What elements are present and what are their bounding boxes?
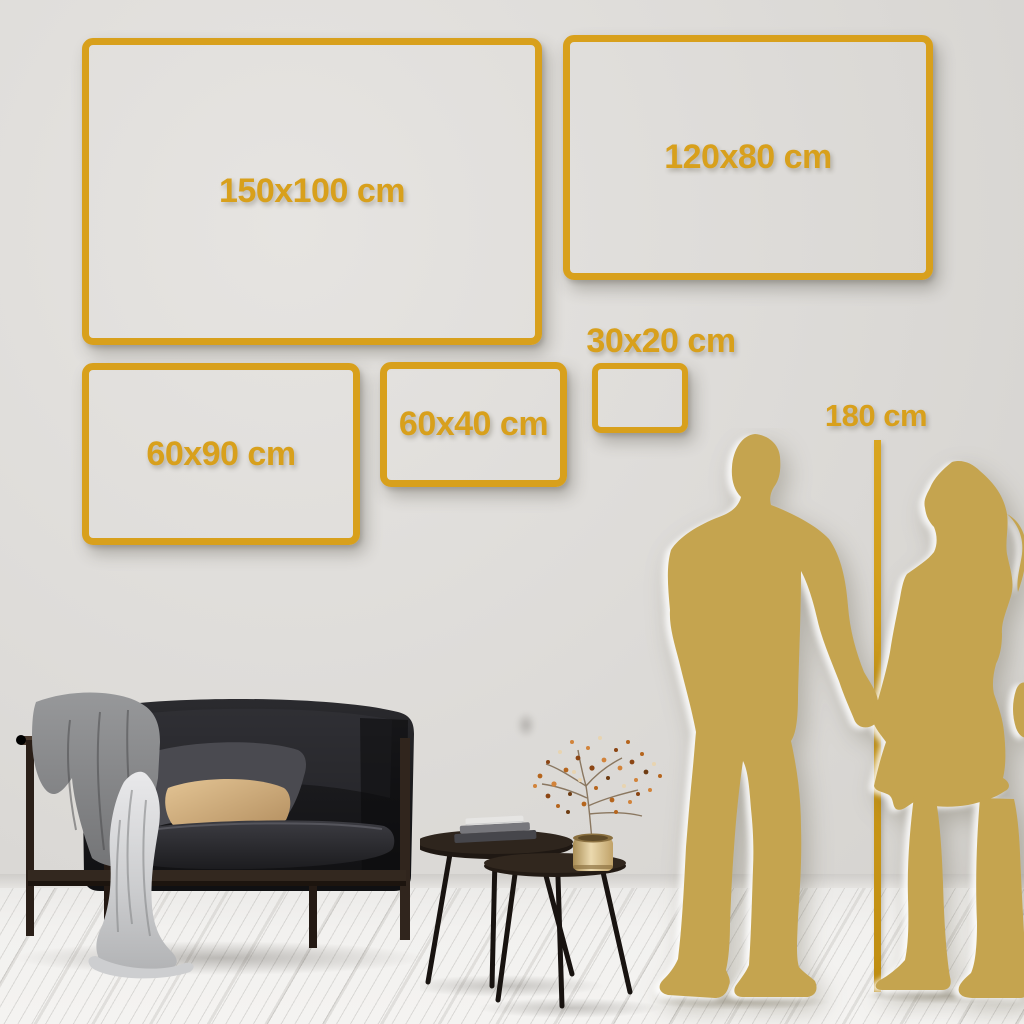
size-label-150x100: 150x100 cm	[219, 172, 405, 211]
sofa-stretcher-shadow	[28, 881, 406, 886]
book-stack	[453, 815, 536, 843]
sofa-leg-rear-left	[26, 740, 34, 936]
sofa-leg-rear-right	[400, 738, 410, 940]
brass-vase	[573, 834, 613, 872]
rail-knob	[16, 735, 26, 745]
size-label-60x90: 60x90 cm	[146, 435, 295, 474]
man-silhouette	[660, 434, 882, 998]
size-frame-60x40: 60x40 cm	[380, 362, 567, 487]
size-frame-120x80: 120x80 cm	[563, 35, 933, 280]
sofa-floor-shadow	[15, 941, 425, 975]
woman-silhouette	[871, 461, 1024, 998]
size-label-60x40: 60x40 cm	[399, 405, 548, 444]
size-frame-60x90: 60x90 cm	[82, 363, 360, 545]
sofa-illustration	[0, 680, 450, 1024]
couple-silhouettes	[630, 428, 1024, 1024]
size-frame-30x20	[592, 363, 688, 433]
dried-plant-stems	[542, 750, 642, 840]
sofa-stretcher	[28, 870, 406, 881]
size-label-30x20: 30x20 cm	[576, 322, 746, 361]
sofa-leg-front-right	[309, 884, 317, 948]
size-guide-scene: 150x100 cm 120x80 cm 60x90 cm 60x40 cm 3…	[0, 0, 1024, 1024]
size-label-120x80: 120x80 cm	[664, 138, 832, 177]
table-shadow	[420, 975, 605, 997]
size-frame-150x100: 150x100 cm	[82, 38, 542, 345]
